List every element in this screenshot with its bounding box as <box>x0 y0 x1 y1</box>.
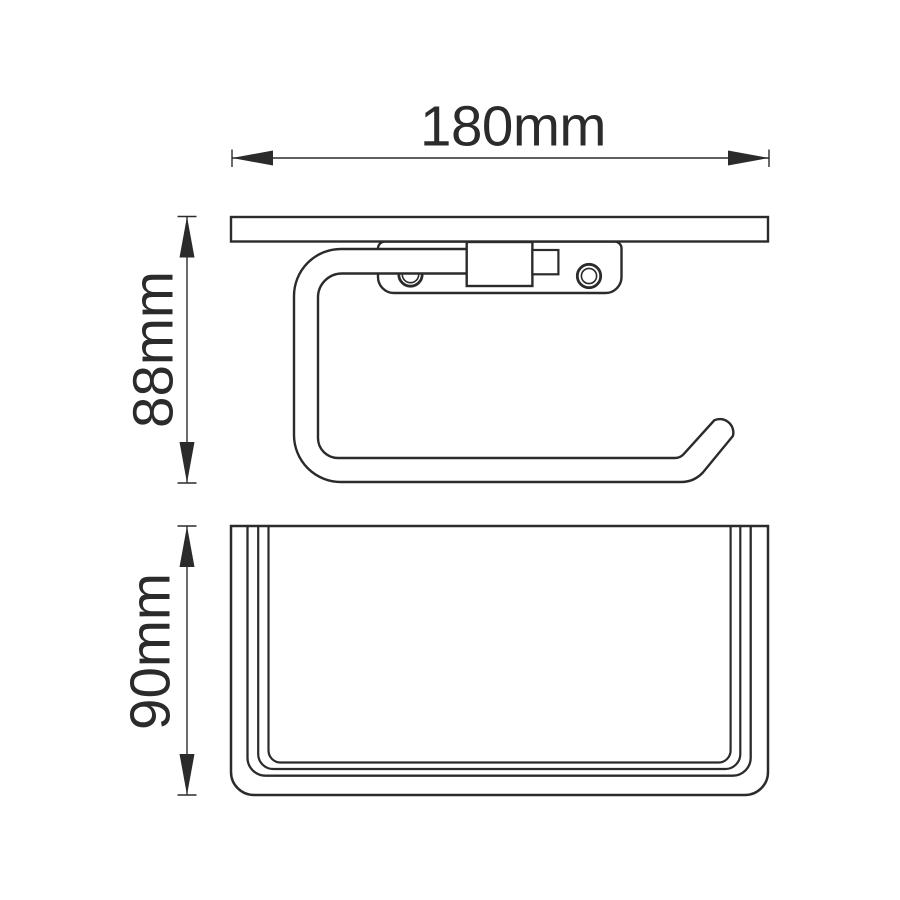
svg-text:88mm: 88mm <box>122 271 185 428</box>
svg-text:90mm: 90mm <box>119 573 182 730</box>
svg-text:180mm: 180mm <box>420 95 606 158</box>
